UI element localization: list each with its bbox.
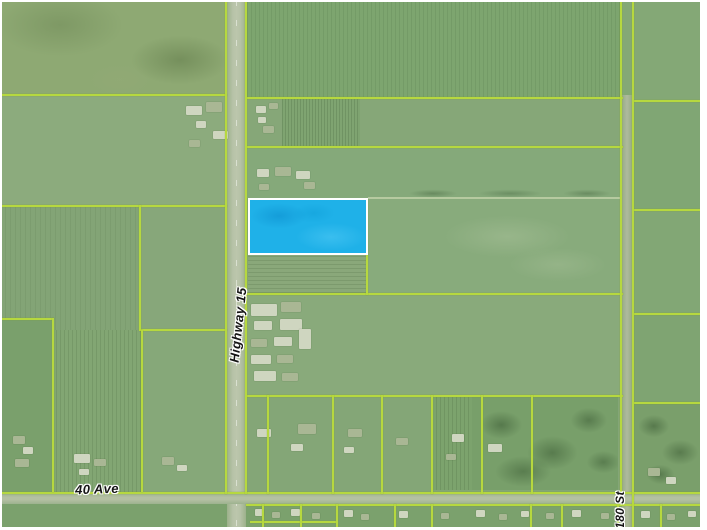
building (277, 355, 293, 363)
building (272, 512, 280, 518)
building (13, 436, 25, 444)
building (256, 106, 266, 113)
building (521, 511, 529, 517)
parcel-boundary-line (620, 0, 622, 494)
building (254, 321, 272, 330)
building (641, 511, 650, 518)
border-right (700, 0, 707, 530)
building (206, 102, 222, 112)
field-parcel (0, 205, 140, 330)
parcel-boundary-line (481, 395, 483, 494)
building (601, 513, 609, 519)
building (23, 447, 33, 454)
parcel-boundary-line (139, 205, 141, 331)
building (666, 477, 676, 484)
parcel-boundary-line (381, 395, 383, 494)
parcel-boundary-line (141, 330, 143, 492)
building (251, 339, 267, 347)
field-parcel (52, 330, 141, 492)
building (488, 444, 502, 452)
40-ave-label: 40 Ave (75, 481, 119, 498)
parcel-boundary-line (633, 100, 700, 102)
field-parcel (0, 0, 227, 94)
field-parcel (247, 0, 621, 97)
road-highway-15 (227, 0, 246, 530)
parcel-boundary-line (0, 205, 227, 207)
building (186, 106, 202, 115)
tree-row (400, 189, 620, 198)
field-parcel (140, 205, 227, 329)
building (396, 438, 408, 445)
parcel-boundary-line (0, 318, 54, 320)
building (79, 469, 89, 475)
building (274, 337, 292, 346)
parcel-boundary-line (0, 94, 227, 96)
building (196, 121, 206, 128)
building (572, 510, 581, 517)
field-parcel (282, 99, 360, 146)
building (688, 511, 696, 517)
parcel-boundary-line (246, 395, 623, 397)
parcel-boundary-line (246, 293, 623, 295)
building (361, 514, 369, 520)
aerial-parcel-map-view[interactable]: Highway 15 40 Ave 180 St (0, 0, 707, 530)
parcel-boundary-line (633, 402, 700, 404)
field-parcel (248, 255, 368, 293)
building (177, 465, 187, 471)
building (269, 103, 278, 109)
parcel-boundary-line (245, 0, 247, 494)
building (281, 302, 301, 312)
parcel-boundary-line (267, 395, 269, 494)
building (275, 167, 291, 176)
parcel-boundary-line (633, 313, 700, 315)
building (452, 434, 464, 442)
building (667, 514, 675, 520)
building (399, 511, 408, 518)
parcel-boundary-line (531, 395, 533, 494)
building (251, 355, 271, 364)
building (263, 126, 274, 133)
180-st-label: 180 St (613, 491, 627, 529)
field-parcel (368, 199, 621, 293)
building (74, 454, 90, 463)
field-parcel (634, 209, 700, 313)
map-canvas[interactable]: Highway 15 40 Ave 180 St (0, 0, 707, 530)
building (648, 468, 660, 476)
parcel-boundary-line (52, 318, 54, 492)
parcel-boundary-line (225, 0, 227, 494)
building (282, 373, 298, 381)
building (258, 117, 266, 123)
field-parcel (634, 100, 700, 209)
building (298, 424, 316, 434)
building (257, 169, 269, 177)
building (296, 171, 310, 179)
parcel-boundary-line (632, 0, 634, 530)
building (162, 457, 174, 465)
border-top (0, 0, 707, 2)
building (15, 459, 29, 467)
building (254, 371, 276, 381)
parcel-boundary-line (246, 146, 623, 148)
building (299, 329, 311, 349)
building (476, 510, 485, 517)
building (348, 429, 362, 437)
building (291, 444, 303, 451)
building (189, 140, 200, 147)
parcel-boundary-line (633, 209, 700, 211)
parcel-boundary-line (332, 395, 334, 494)
field-parcel (634, 313, 700, 402)
building (259, 184, 269, 190)
building (291, 509, 300, 516)
building (94, 459, 106, 466)
building (312, 513, 320, 519)
parcel-boundary-line (246, 97, 623, 99)
parcel-boundary-line (246, 504, 707, 506)
parcel-boundary-line (431, 395, 433, 494)
highlighted-parcel[interactable] (248, 198, 368, 255)
border-left (0, 0, 2, 530)
building (441, 513, 449, 519)
road-180-st (622, 95, 632, 530)
building (344, 510, 353, 517)
building (546, 513, 554, 519)
building (304, 182, 315, 189)
building (499, 514, 507, 520)
building (446, 454, 456, 460)
parcel-boundary-line (140, 329, 227, 331)
building (251, 304, 277, 316)
building (344, 447, 354, 453)
